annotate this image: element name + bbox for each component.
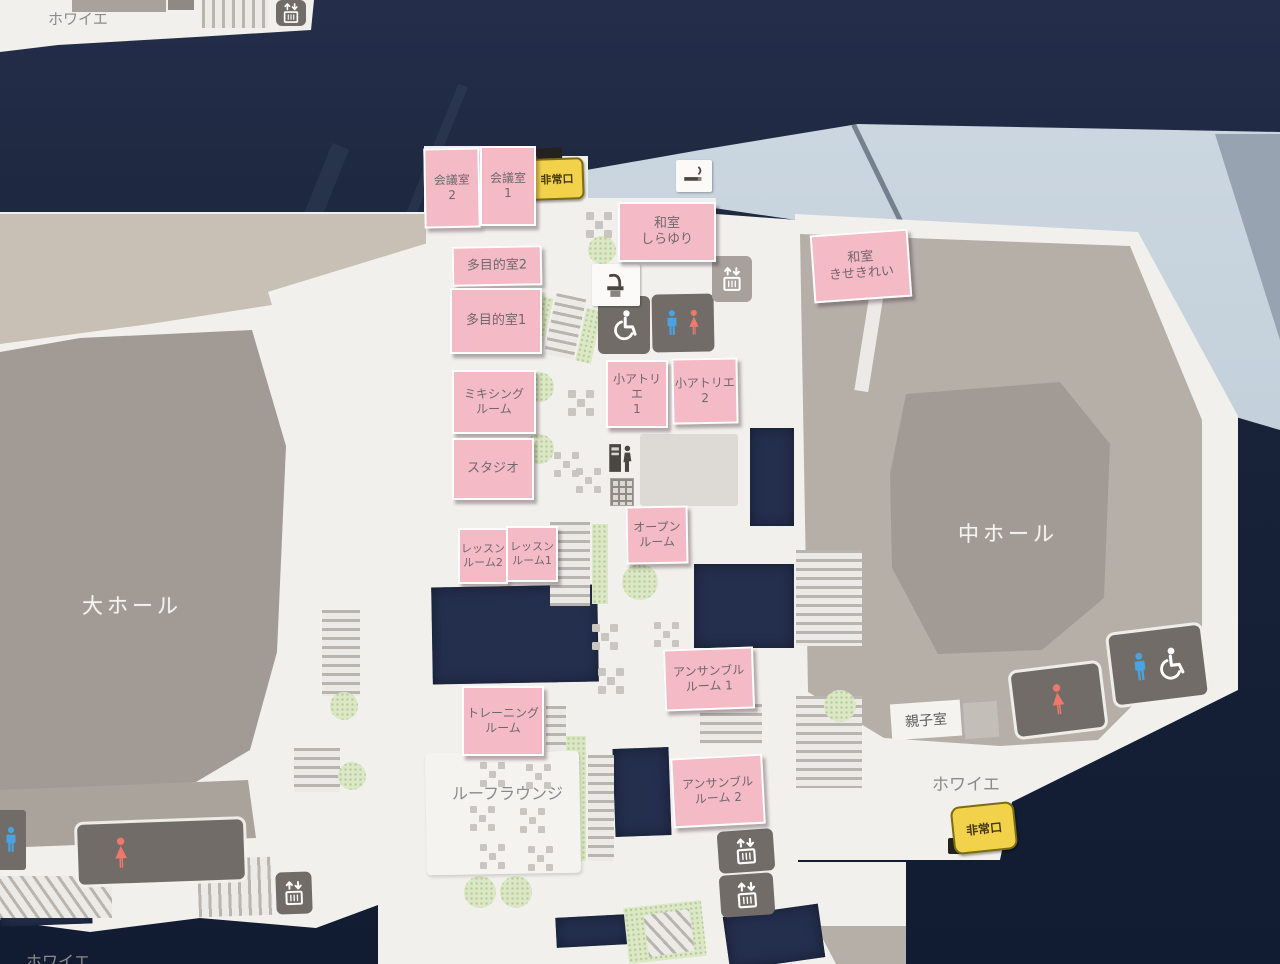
parent-child-room-box: 親子室 [890,700,962,741]
plant-icon [338,762,366,790]
room-lesson-1: レッスン ルーム1 [506,526,558,582]
large-hall-label: 大ホール [82,590,182,620]
female-icon [685,308,704,338]
smoking-icon [681,165,707,187]
parent-child-room-label: 親子室 [904,709,947,732]
room-training: トレーニング ルーム [462,686,544,756]
stairs-area [294,748,340,792]
table-seating-icon [468,804,496,832]
plant-icon [330,692,358,720]
room-kaigishitsu-1: 会議室 1 [480,146,536,226]
plant-icon [500,876,532,908]
restroom-block-female [1010,663,1105,737]
photo-of-floor-map: ホワイエ [0,0,1280,964]
emergency-exit-sign-top: 非常口 [529,157,584,201]
restroom-block-male [0,810,26,870]
room-lesson-2: レッスン ルーム2 [458,528,508,584]
female-icon [1045,682,1071,718]
elevator-icon [719,872,776,918]
foyer-label-right: ホワイエ [932,770,1000,795]
plant-icon [622,564,658,600]
emergency-exit-sign-bottom-right: 非常口 [950,801,1019,855]
room-tamokutekishitsu-1: 多目的室1 [450,288,542,354]
wheelchair-icon [1152,645,1188,683]
stairs-area [322,610,360,696]
table-seating-icon [524,762,552,790]
room-kaigishitsu-2: 会議室 2 [423,148,480,229]
table-seating-icon [518,806,546,834]
room-washitsu-shirayuri: 和室 しらゆり [618,202,716,262]
male-icon [1128,650,1152,684]
smoking-area-sign [676,160,712,192]
table-seating-icon [478,842,506,870]
room-tamokutekishitsu-2: 多目的室2 [452,245,543,287]
table-seating-icon [478,760,506,788]
atrium-void [612,747,671,837]
wheelchair-icon [609,309,639,341]
room-ensemble-2: アンサンブル ルーム 2 [670,754,766,829]
restroom-block-male-accessible [1108,625,1208,706]
stairs-area [796,550,862,646]
stairs-area [588,755,614,861]
male-icon [2,824,20,856]
room-studio: スタジオ [452,438,534,500]
drinking-fountain-icon [601,271,631,299]
atrium-void [694,564,794,648]
table-seating-icon [566,388,596,418]
plant-icon [464,876,496,908]
elevator-icon [712,256,752,302]
room-atelier-2: 小アトリエ 2 [671,357,738,424]
storage-box [963,701,999,739]
table-seating-icon [584,210,614,240]
wall-segment [168,0,194,10]
medium-hall-label: 中ホール [958,518,1058,548]
stairs-area [643,909,694,957]
emergency-exit-label: 非常口 [540,170,574,187]
kiosk-box [610,478,634,506]
vending-machine-icon [606,442,636,474]
restroom-block-female [77,819,245,885]
room-mixing: ミキシング ルーム [452,370,536,434]
table-seating-icon [590,622,620,652]
plant-icon [824,690,856,722]
room-washitsu-kisekirei: 和室 きせきれい [810,229,913,304]
table-seating-icon [652,620,680,648]
restroom-block [651,293,714,352]
foyer-label-top-left: ホワイエ [48,8,108,29]
seating-zone [640,434,738,506]
female-icon [109,835,132,872]
elevator-icon [717,828,776,874]
room-atelier-1: 小アトリエ 1 [606,360,668,428]
room-open: オープン ルーム [625,505,688,564]
table-seating-icon [574,466,602,494]
foyer-label-bottom-left: ホワイエ [26,948,90,964]
table-seating-icon [596,666,626,696]
drinking-fountain-sign [592,264,640,306]
plant-icon [588,236,616,264]
emergency-exit-label: 非常口 [965,818,1003,839]
elevator-icon [275,871,312,914]
atrium-void [555,914,628,948]
green-area [592,524,608,604]
male-icon [663,308,682,338]
table-seating-icon [526,844,554,872]
room-ensemble-1: アンサンブル ルーム 1 [663,646,755,711]
elevator-icon [276,0,306,26]
foyer-label-bottom-clip: ホワイエ [26,946,122,964]
atrium-void [750,428,794,526]
stairs-area [202,0,268,28]
